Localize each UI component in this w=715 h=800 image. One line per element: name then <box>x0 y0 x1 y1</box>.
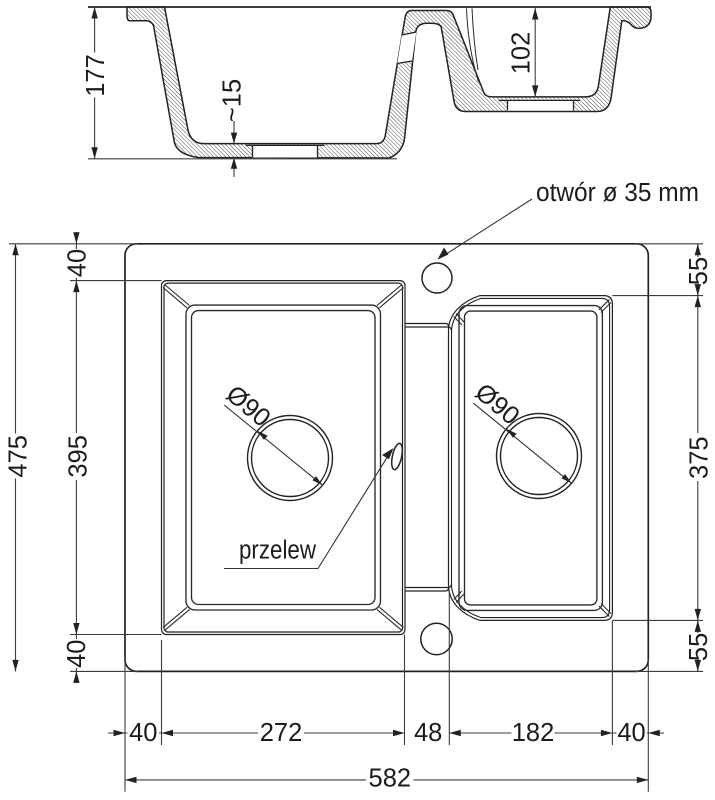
svg-text:~15: ~15 <box>219 79 247 122</box>
svg-text:55: 55 <box>685 633 713 661</box>
svg-text:475: 475 <box>5 435 33 478</box>
svg-text:55: 55 <box>685 257 713 285</box>
svg-text:przelew: przelew <box>239 537 317 565</box>
svg-text:otwór ø 35 mm: otwór ø 35 mm <box>536 179 699 207</box>
svg-text:102: 102 <box>508 32 536 75</box>
svg-text:182: 182 <box>512 719 555 747</box>
svg-text:177: 177 <box>82 54 110 97</box>
svg-text:40: 40 <box>64 249 92 277</box>
svg-text:375: 375 <box>685 436 713 479</box>
svg-text:272: 272 <box>260 719 303 747</box>
svg-text:40: 40 <box>129 719 157 747</box>
svg-text:40: 40 <box>617 719 645 747</box>
svg-text:48: 48 <box>414 719 442 747</box>
svg-text:40: 40 <box>63 640 91 668</box>
svg-text:395: 395 <box>65 435 93 478</box>
svg-text:582: 582 <box>369 765 412 793</box>
